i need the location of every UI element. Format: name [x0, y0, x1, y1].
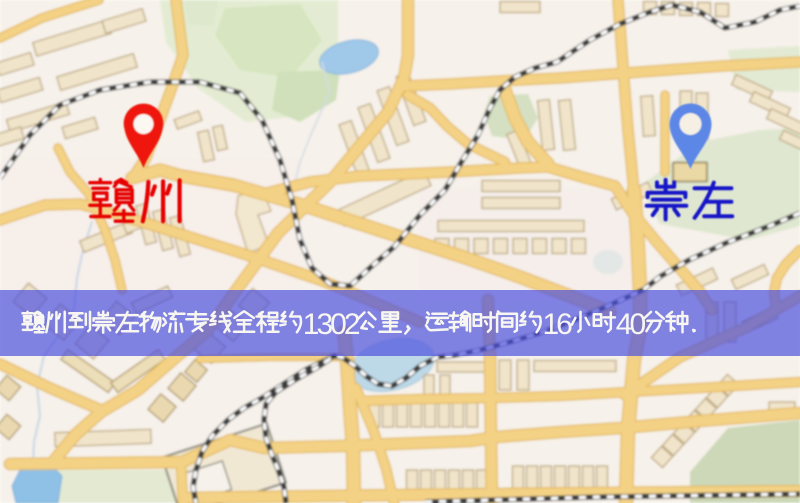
svg-text:16: 16: [543, 308, 573, 341]
svg-text:40: 40: [616, 308, 646, 341]
svg-text:1302: 1302: [303, 308, 360, 341]
